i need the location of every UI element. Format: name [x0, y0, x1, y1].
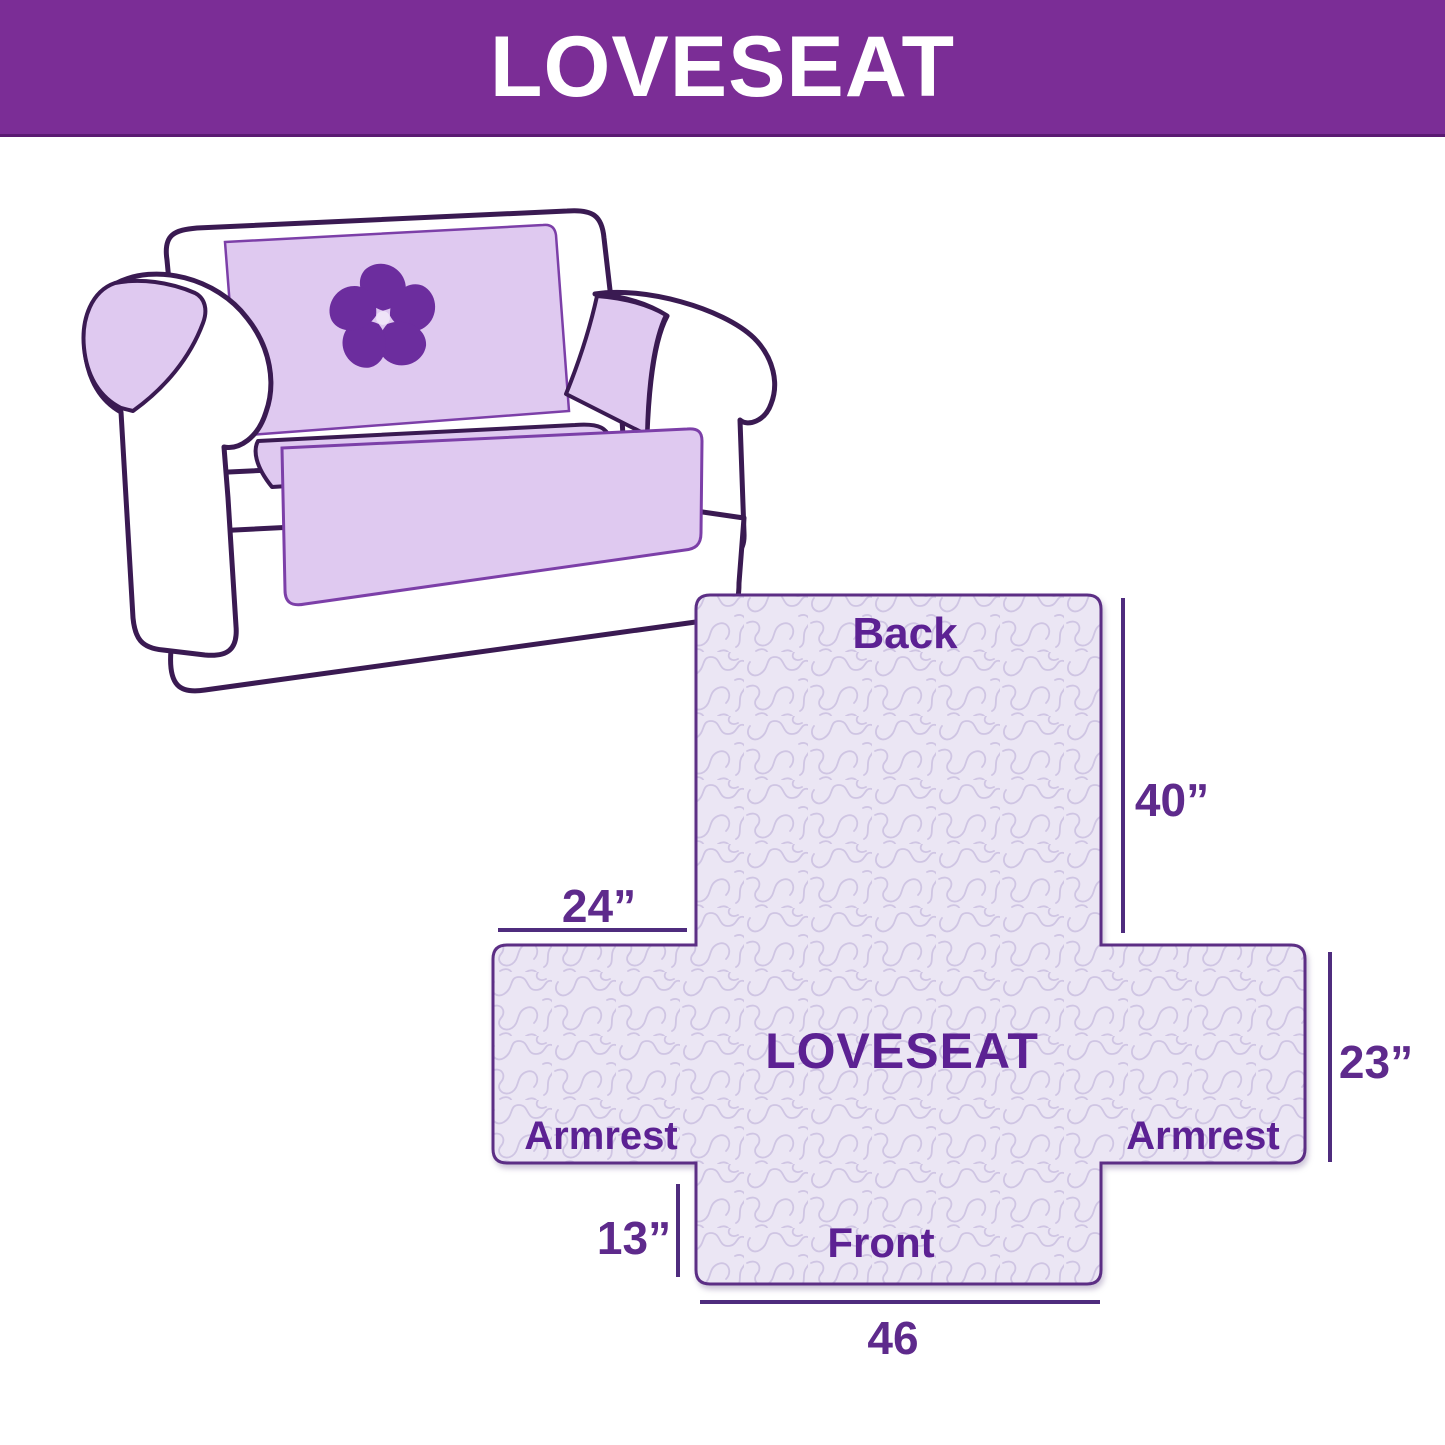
cover-outline-shape [493, 595, 1305, 1284]
label-armrest-right: Armrest [1126, 1116, 1279, 1156]
dimension-back-height: 40” [1135, 777, 1209, 823]
label-armrest-left: Armrest [524, 1116, 677, 1156]
label-back: Back [852, 612, 957, 656]
title-banner: LOVESEAT [0, 0, 1445, 137]
label-front: Front [827, 1222, 934, 1264]
page-title: LOVESEAT [490, 24, 955, 110]
dimension-front-width: 46 [867, 1315, 918, 1361]
infographic-page: LOVESEAT [0, 0, 1445, 1445]
label-loveseat-center: LOVESEAT [765, 1026, 1039, 1076]
dimension-side-depth: 23” [1339, 1039, 1413, 1085]
dimension-back-offset: 24” [562, 883, 636, 929]
dimension-front-drop: 13” [597, 1215, 671, 1261]
